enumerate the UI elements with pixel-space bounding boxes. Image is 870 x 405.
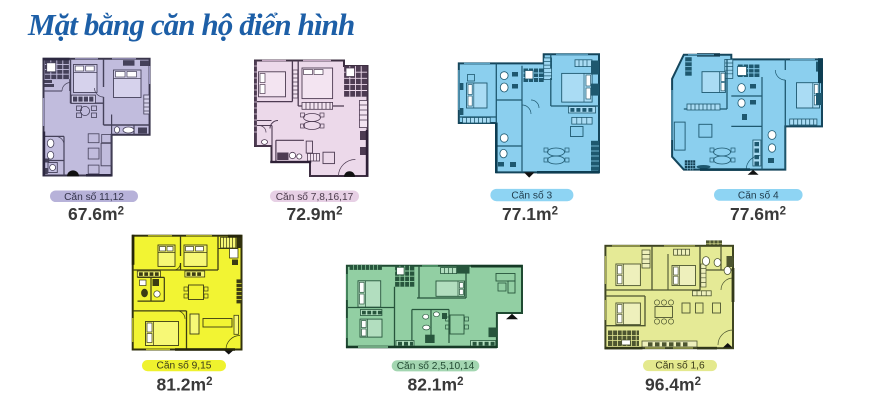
svg-text:82.1m2: 82.1m2 — [407, 375, 463, 395]
svg-text:Căn số 7,8,16,17: Căn số 7,8,16,17 — [276, 191, 354, 203]
svg-text:77.1m2: 77.1m2 — [502, 204, 558, 224]
svg-text:72.9m2: 72.9m2 — [286, 204, 342, 224]
svg-text:77.6m2: 77.6m2 — [730, 204, 786, 224]
svg-text:Căn số 3: Căn số 3 — [511, 190, 552, 202]
svg-text:Mặt bằng căn hộ điển hình: Mặt bằng căn hộ điển hình — [27, 7, 354, 42]
svg-text:Căn số 1,6: Căn số 1,6 — [655, 360, 705, 372]
svg-text:Căn số 2,5,10,14: Căn số 2,5,10,14 — [397, 360, 475, 372]
svg-text:Căn số 11,12: Căn số 11,12 — [64, 191, 124, 203]
svg-text:67.6m2: 67.6m2 — [68, 204, 124, 224]
svg-text:81.2m2: 81.2m2 — [156, 375, 212, 395]
svg-text:96.4m2: 96.4m2 — [645, 375, 701, 395]
svg-text:Căn số 9,15: Căn số 9,15 — [157, 360, 212, 372]
svg-text:Căn số 4: Căn số 4 — [738, 190, 779, 202]
